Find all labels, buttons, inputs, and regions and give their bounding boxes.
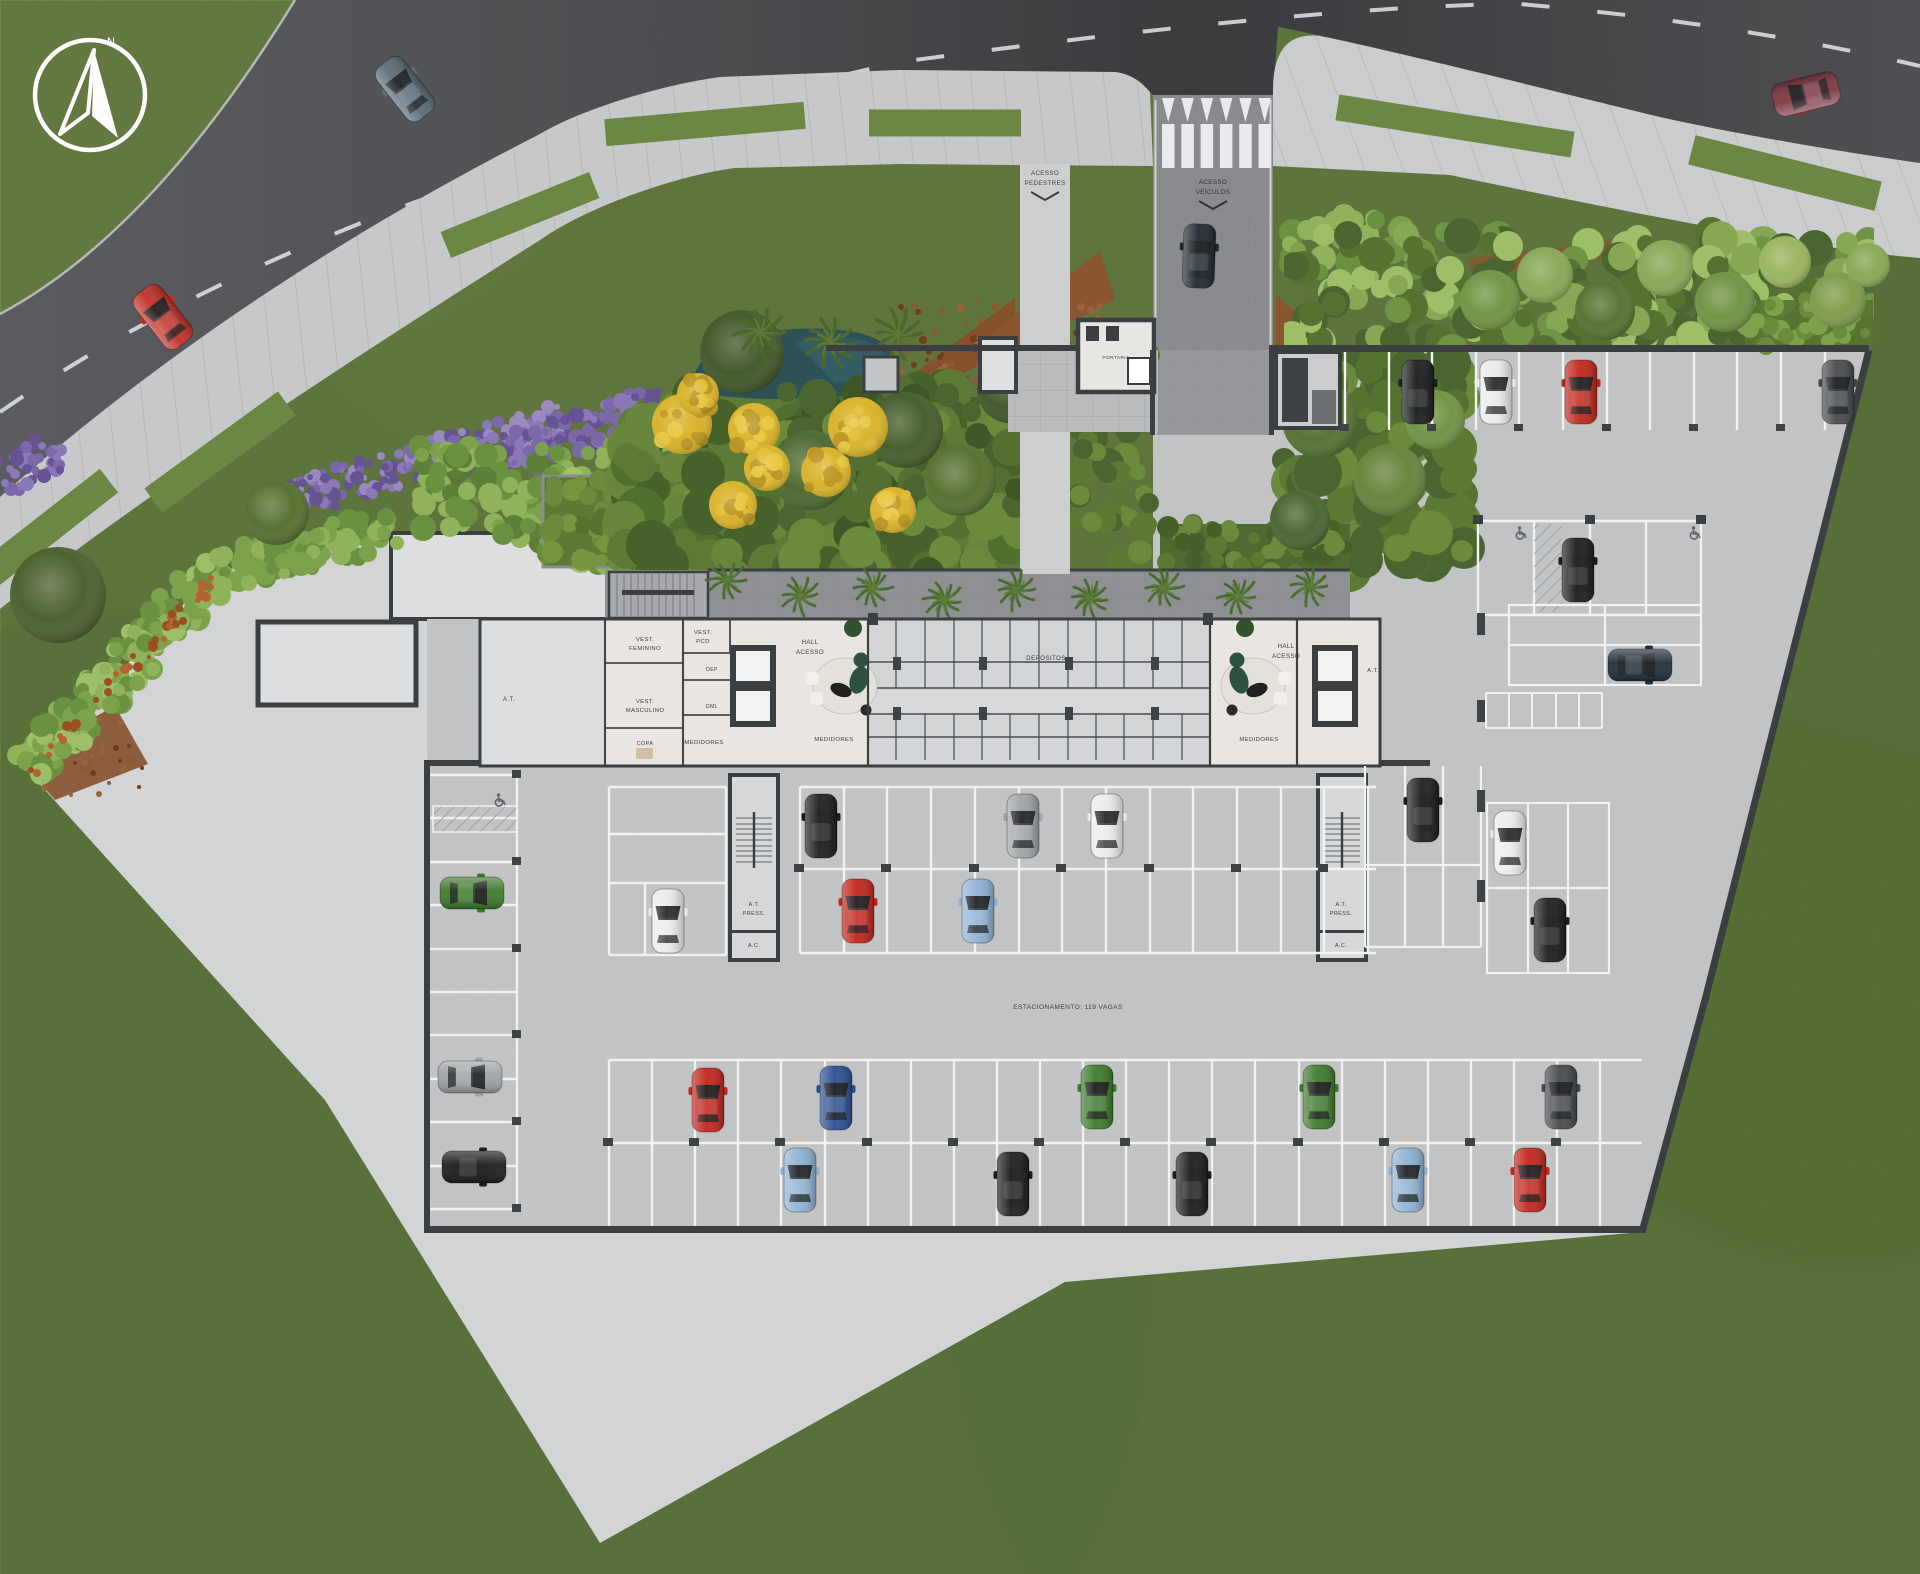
svg-text:N: N <box>107 36 115 48</box>
svg-text:ACESSO: ACESSO <box>796 649 824 656</box>
svg-text:HALL: HALL <box>801 639 818 646</box>
svg-text:PRESS.: PRESS. <box>1330 911 1353 917</box>
svg-text:MEDIDORES: MEDIDORES <box>814 737 853 743</box>
svg-text:MEDIDORES: MEDIDORES <box>1239 737 1278 743</box>
svg-text:MASCULINO: MASCULINO <box>626 708 665 714</box>
svg-text:ACESSO: ACESSO <box>1272 653 1300 660</box>
svg-text:PRESS.: PRESS. <box>743 911 766 917</box>
svg-text:COPA: COPA <box>637 741 654 747</box>
svg-text:A.T.: A.T. <box>748 902 759 908</box>
svg-text:DEPÓSITOS: DEPÓSITOS <box>1026 655 1066 662</box>
svg-text:ACESSO: ACESSO <box>1031 170 1059 177</box>
svg-text:VEÍCULOS: VEÍCULOS <box>1196 189 1231 196</box>
svg-text:PCD: PCD <box>696 639 710 645</box>
svg-text:ESTACIONAMENTO: 119 VAGAS: ESTACIONAMENTO: 119 VAGAS <box>1013 1004 1123 1011</box>
svg-text:VEST.: VEST. <box>636 699 654 705</box>
svg-text:A.T.: A.T. <box>1335 902 1346 908</box>
svg-text:MEDIDORES: MEDIDORES <box>684 740 723 746</box>
svg-text:A.C.: A.C. <box>1335 943 1347 949</box>
svg-text:A.C.: A.C. <box>748 943 760 949</box>
svg-text:DEP: DEP <box>706 667 718 673</box>
svg-text:PORTARIA: PORTARIA <box>1102 355 1130 361</box>
svg-text:FEMININO: FEMININO <box>629 646 661 652</box>
svg-text:A.T.: A.T. <box>1367 668 1379 674</box>
svg-text:HALL: HALL <box>1277 643 1294 650</box>
svg-text:DML: DML <box>706 704 718 710</box>
svg-text:VEST.: VEST. <box>636 637 654 643</box>
svg-text:A.T.: A.T. <box>503 696 515 703</box>
svg-text:ACESSO: ACESSO <box>1199 179 1227 186</box>
svg-text:PEDESTRES: PEDESTRES <box>1024 180 1065 187</box>
svg-text:VEST.: VEST. <box>694 630 712 636</box>
